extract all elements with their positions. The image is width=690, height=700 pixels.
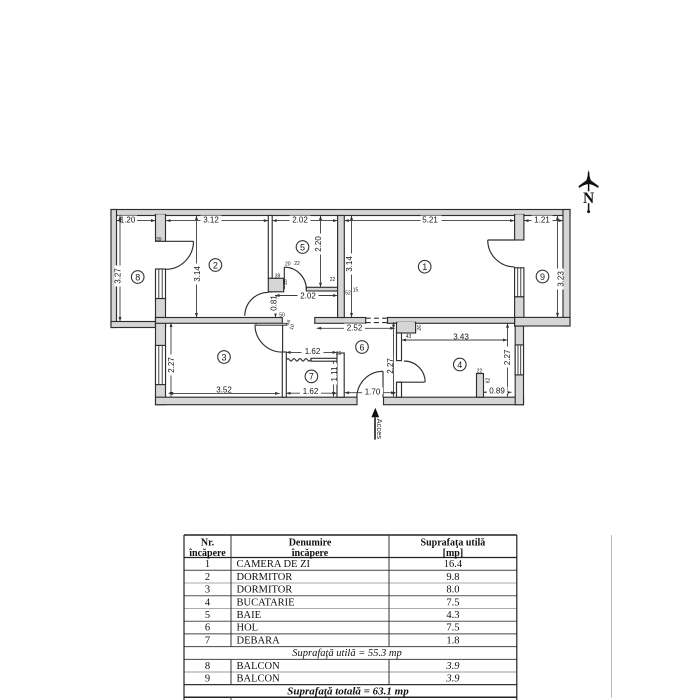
svg-text:6: 6 <box>205 623 210 634</box>
svg-text:15: 15 <box>353 288 359 294</box>
svg-text:Acces: Acces <box>375 419 384 440</box>
svg-text:1.21: 1.21 <box>534 215 550 224</box>
svg-text:62: 62 <box>485 378 491 384</box>
svg-text:DEBARA: DEBARA <box>237 635 281 646</box>
svg-text:52: 52 <box>345 290 351 296</box>
svg-text:Suprafaţă utilă = 55.3 mp: Suprafaţă utilă = 55.3 mp <box>292 648 401 659</box>
svg-text:7.5: 7.5 <box>446 597 459 608</box>
svg-text:2.27: 2.27 <box>386 358 395 374</box>
svg-text:8: 8 <box>135 272 140 282</box>
svg-text:1: 1 <box>422 262 427 272</box>
svg-text:8.0: 8.0 <box>446 585 459 596</box>
svg-text:2: 2 <box>205 572 210 583</box>
svg-text:3.43: 3.43 <box>453 333 469 342</box>
svg-text:43: 43 <box>406 334 412 340</box>
svg-text:39: 39 <box>156 237 162 243</box>
svg-text:1.8: 1.8 <box>446 635 459 646</box>
svg-text:3.12: 3.12 <box>203 215 219 224</box>
svg-text:3.9: 3.9 <box>445 674 460 685</box>
svg-text:22: 22 <box>294 261 300 267</box>
svg-text:8: 8 <box>205 661 210 672</box>
svg-text:26: 26 <box>417 325 423 331</box>
svg-text:2: 2 <box>213 260 218 270</box>
svg-text:2.27: 2.27 <box>167 357 176 373</box>
svg-text:HOL: HOL <box>237 623 259 634</box>
svg-text:15: 15 <box>336 351 342 357</box>
svg-text:BALCON: BALCON <box>237 661 281 672</box>
svg-text:20: 20 <box>285 262 291 268</box>
svg-text:6: 6 <box>359 342 364 352</box>
svg-text:3: 3 <box>221 352 226 362</box>
svg-text:1.11: 1.11 <box>330 366 339 382</box>
svg-text:1.62: 1.62 <box>305 347 321 356</box>
svg-text:2.52: 2.52 <box>347 324 363 333</box>
svg-text:1.62: 1.62 <box>303 387 319 396</box>
svg-text:3.14: 3.14 <box>193 266 202 282</box>
svg-text:5.21: 5.21 <box>422 215 438 224</box>
svg-text:0.81: 0.81 <box>270 295 279 311</box>
svg-text:2.02: 2.02 <box>300 292 316 301</box>
svg-text:9.8: 9.8 <box>446 572 459 583</box>
svg-text:încăpere: încăpere <box>188 548 226 559</box>
svg-text:2.20: 2.20 <box>314 236 323 252</box>
svg-text:7: 7 <box>309 372 314 382</box>
svg-text:4: 4 <box>205 597 211 608</box>
svg-text:Suprafaţă totală = 63.1 mp: Suprafaţă totală = 63.1 mp <box>287 685 409 697</box>
svg-text:N: N <box>583 190 594 207</box>
svg-text:DORMITOR: DORMITOR <box>237 585 293 596</box>
svg-text:CAMERA DE ZI: CAMERA DE ZI <box>237 559 311 570</box>
svg-text:3.52: 3.52 <box>216 386 232 395</box>
svg-text:3.9: 3.9 <box>445 661 460 672</box>
svg-text:încăpere: încăpere <box>291 548 329 559</box>
svg-text:9: 9 <box>205 674 210 685</box>
svg-text:3.14: 3.14 <box>345 256 354 272</box>
svg-text:BAIE: BAIE <box>237 610 262 621</box>
svg-text:5: 5 <box>300 242 305 252</box>
svg-text:3.23: 3.23 <box>556 271 565 287</box>
svg-text:39: 39 <box>275 273 281 279</box>
svg-text:3: 3 <box>205 585 210 596</box>
svg-text:0.89: 0.89 <box>489 387 505 396</box>
svg-text:1.70: 1.70 <box>365 387 381 396</box>
svg-text:1.20: 1.20 <box>120 215 136 224</box>
svg-text:1: 1 <box>205 559 210 570</box>
svg-text:26: 26 <box>283 279 289 285</box>
svg-text:22: 22 <box>330 277 336 283</box>
svg-text:2.02: 2.02 <box>292 215 308 224</box>
svg-text:DORMITOR: DORMITOR <box>237 572 293 583</box>
svg-text:4: 4 <box>457 360 462 370</box>
svg-text:3.27: 3.27 <box>114 268 123 284</box>
svg-text:2.27: 2.27 <box>503 349 512 365</box>
svg-text:[mp]: [mp] <box>443 548 464 559</box>
svg-text:7.5: 7.5 <box>446 623 459 634</box>
svg-text:9: 9 <box>540 272 545 282</box>
svg-text:7: 7 <box>205 635 210 646</box>
svg-text:5: 5 <box>205 610 210 621</box>
svg-text:BUCATARIE: BUCATARIE <box>237 597 295 608</box>
svg-text:16.4: 16.4 <box>444 559 463 570</box>
svg-text:BALCON: BALCON <box>237 674 281 685</box>
svg-text:4.3: 4.3 <box>446 610 459 621</box>
svg-text:22: 22 <box>477 369 483 375</box>
svg-text:50: 50 <box>279 313 285 319</box>
